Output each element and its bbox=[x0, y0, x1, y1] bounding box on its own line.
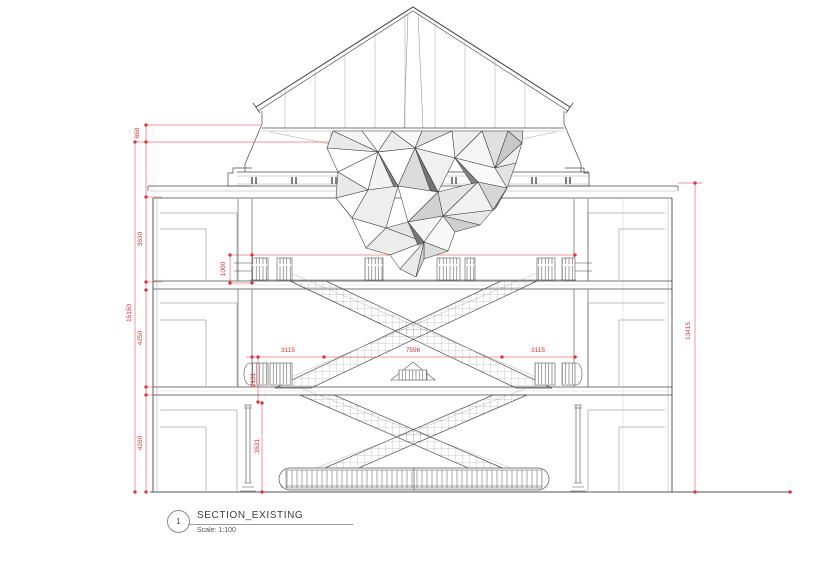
dim-first-storey: 4260 bbox=[138, 436, 145, 450]
section-drawing-sheet: 650 3630 15150 4250 4260 1000 2131 3531 … bbox=[0, 0, 818, 587]
dim-attic-storey: 3630 bbox=[138, 232, 145, 246]
gallery-balustrades bbox=[252, 258, 575, 385]
right-wing-openings bbox=[588, 213, 665, 491]
dim-eave-height: 650 bbox=[135, 128, 142, 139]
title-divider bbox=[188, 524, 353, 525]
drawing-scale: Scale: 1:100 bbox=[197, 527, 236, 534]
dim-second-storey: 4250 bbox=[138, 331, 145, 345]
ground-ornament-railing bbox=[279, 468, 549, 490]
dim-overall-left: 15150 bbox=[127, 304, 134, 322]
dim-ground-clear: 3531 bbox=[255, 439, 262, 453]
drawing-title: SECTION_EXISTING bbox=[197, 510, 303, 521]
drawing-number-badge: 1 bbox=[167, 510, 190, 533]
dim-balustrade-height: 1000 bbox=[221, 262, 228, 276]
dim-overall-right: 13415 bbox=[686, 322, 693, 340]
left-wing-openings bbox=[160, 213, 237, 491]
section-drawing bbox=[0, 0, 818, 587]
dim-atrium-span: 7596 bbox=[406, 348, 420, 355]
dim-bay-right: 3115 bbox=[531, 348, 545, 355]
drawing-number: 1 bbox=[176, 517, 180, 526]
dim-landing-height: 2131 bbox=[251, 373, 258, 387]
dim-bay-left: 3115 bbox=[281, 348, 295, 355]
